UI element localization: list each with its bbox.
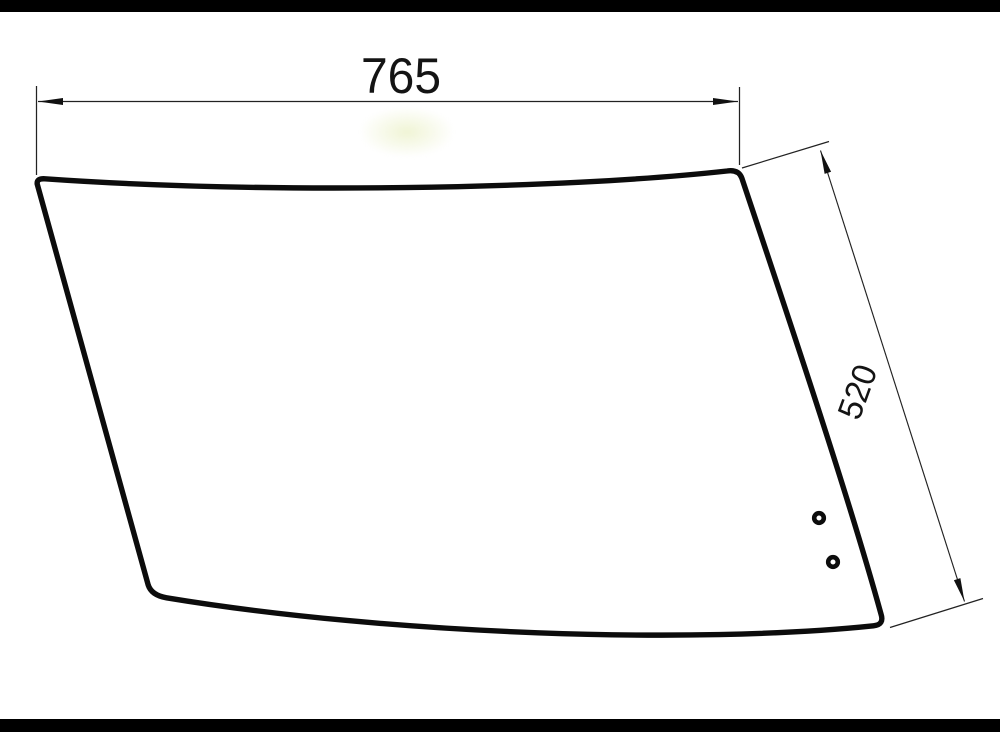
width-dimension-label: 765 (334, 52, 468, 100)
arrowhead-height-bottom-icon (954, 578, 965, 601)
arrowhead-width-right-icon (713, 98, 738, 105)
arrowhead-width-left-icon (38, 98, 63, 105)
extension-line-height-bottom (890, 599, 983, 628)
letterbox-top-bar (0, 0, 1000, 12)
drawing-canvas: 765 520 (0, 0, 1000, 732)
letterbox-bottom-bar (0, 719, 1000, 732)
glass-panel-outline (37, 171, 882, 635)
arrowhead-height-top-icon (821, 151, 832, 174)
extension-line-height-top (742, 142, 829, 169)
